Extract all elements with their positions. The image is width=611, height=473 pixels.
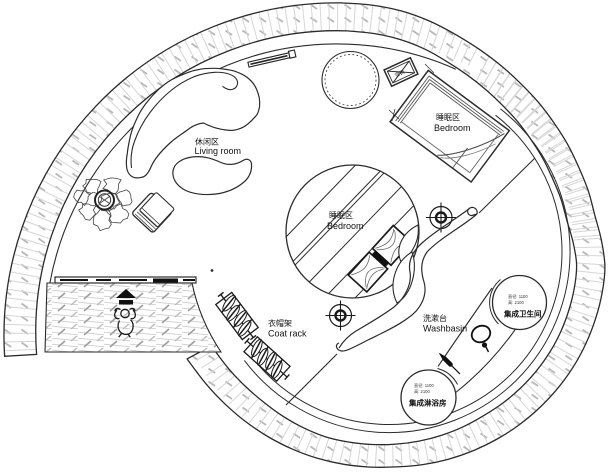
svg-text:集成淋浴房: 集成淋浴房 xyxy=(408,398,447,408)
svg-text:集成卫生间: 集成卫生间 xyxy=(503,309,542,319)
svg-text:Washbasin: Washbasin xyxy=(423,324,467,334)
svg-text:洗漱台: 洗漱台 xyxy=(423,313,447,323)
svg-text:高: 2100: 高: 2100 xyxy=(508,299,525,306)
svg-text:Bedroom: Bedroom xyxy=(327,221,364,231)
svg-text:休闲区: 休闲区 xyxy=(195,137,219,147)
svg-text:高: 2100: 高: 2100 xyxy=(414,388,431,395)
svg-text:Living room: Living room xyxy=(195,146,242,156)
svg-text:睡眠区: 睡眠区 xyxy=(329,211,353,220)
svg-text:睡眠区: 睡眠区 xyxy=(436,113,460,122)
svg-text:衣帽架: 衣帽架 xyxy=(268,318,292,328)
svg-text:Coat rack: Coat rack xyxy=(268,329,307,339)
svg-text:Bedroom: Bedroom xyxy=(434,123,471,133)
svg-text:直径: 1100: 直径: 1100 xyxy=(414,382,434,388)
svg-text:直径: 1100: 直径: 1100 xyxy=(508,293,528,299)
